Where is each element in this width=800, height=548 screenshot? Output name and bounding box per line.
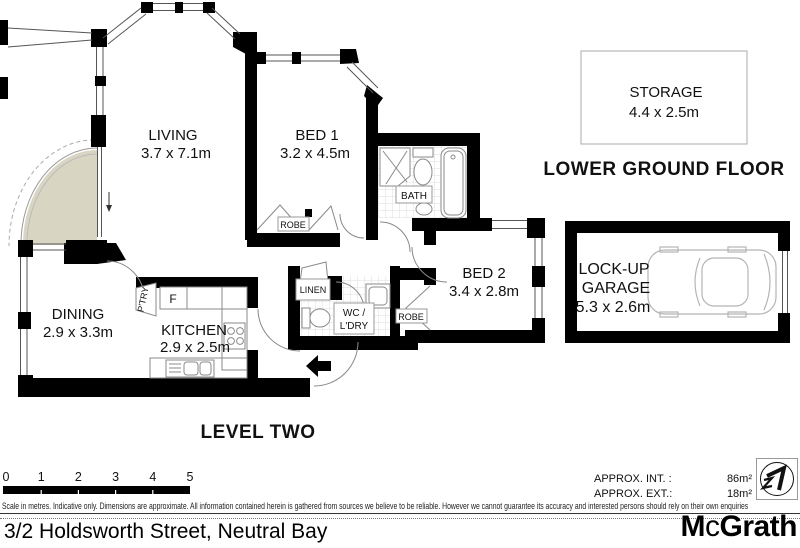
- living-dims: 3.7 x 7.1m: [141, 145, 211, 162]
- kitchen-dims: 2.9 x 2.5m: [160, 339, 230, 356]
- scale-bar: 0 1 2 3 4 5: [0, 462, 220, 502]
- bed1-dims: 3.2 x 4.5m: [280, 145, 350, 162]
- storage-label: STORAGE: [629, 84, 702, 101]
- scale-tick-1: 1: [38, 470, 45, 484]
- dining-label: DINING: [52, 306, 105, 323]
- level-two-label: LEVEL TWO: [201, 422, 316, 443]
- bath-label: BATH: [401, 191, 427, 202]
- basin: [416, 203, 432, 215]
- approx-areas: APPROX. INT. : 86m² APPROX. EXT.: 18m²: [594, 472, 752, 502]
- living-label: LIVING: [148, 127, 197, 144]
- wc-label-line1: WC /: [343, 308, 365, 319]
- level-two-plan: LIVING 3.7 x 7.1m BED 1 3.2 x 4.5m BED 2…: [0, 2, 545, 443]
- fridge-label: F: [169, 292, 176, 306]
- north-compass-icon: [756, 458, 798, 500]
- logo-m: M: [680, 510, 705, 543]
- garage: LOCK-UP GARAGE 5.3 x 2.6m: [565, 221, 790, 343]
- car-top-view: [648, 247, 776, 317]
- scale-tick-4: 4: [149, 470, 156, 484]
- mcgrath-logo: McGrath: [680, 510, 797, 544]
- dining-dims: 2.9 x 3.3m: [43, 324, 113, 341]
- wc-label-line2: L'DRY: [340, 321, 369, 332]
- wc-toilet-bowl: [310, 309, 330, 327]
- scale-tick-2: 2: [75, 470, 82, 484]
- bed1-label: BED 1: [295, 127, 338, 144]
- robe1-label: ROBE: [280, 220, 306, 230]
- logo-grath: Grath: [719, 510, 797, 543]
- approx-int-label: APPROX. INT. :: [594, 472, 672, 487]
- approx-ext-label: APPROX. EXT.:: [594, 487, 672, 502]
- balcony: [9, 140, 101, 246]
- property-address: 3/2 Holdsworth Street, Neutral Bay: [4, 520, 327, 544]
- robe1-door-right: [309, 206, 338, 230]
- scale-tick-3: 3: [112, 470, 119, 484]
- logo-c: c: [705, 510, 720, 543]
- garage-label-line2: GARAGE: [582, 280, 650, 297]
- wc-toilet-tank: [302, 308, 310, 328]
- approx-int-row: APPROX. INT. : 86m²: [594, 472, 752, 487]
- toilet-bowl: [414, 159, 432, 185]
- floorplan-drawing: LIVING 3.7 x 7.1m BED 1 3.2 x 4.5m BED 2…: [0, 0, 800, 460]
- linen-label: LINEN: [300, 285, 327, 295]
- approx-ext-value: 18m²: [727, 487, 752, 502]
- garage-dims: 5.3 x 2.6m: [576, 299, 651, 316]
- storage-dims: 4.4 x 2.5m: [629, 104, 699, 121]
- lower-ground-floor: STORAGE 4.4 x 2.5m LOWER GROUND FLOOR: [543, 51, 784, 180]
- scale-bar-rule: [3, 486, 190, 494]
- entry-arrow-icon: [306, 355, 331, 377]
- bed2-dims: 3.4 x 2.8m: [449, 283, 519, 300]
- bed1-door-arc: [340, 214, 364, 238]
- scale-tick-5: 5: [187, 470, 194, 484]
- garage-door: [783, 251, 788, 313]
- robe2-label: ROBE: [398, 312, 424, 322]
- scale-tick-0: 0: [3, 470, 10, 484]
- toilet-tank: [413, 148, 433, 157]
- bed2-label: BED 2: [462, 265, 505, 282]
- garage-label-line1: LOCK-UP: [578, 261, 649, 278]
- bench-top: [187, 287, 247, 309]
- kitchen-label: KITCHEN: [161, 322, 227, 339]
- bath-door-arc: [380, 222, 410, 252]
- floorplan-page: LIVING 3.7 x 7.1m BED 1 3.2 x 4.5m BED 2…: [0, 0, 800, 548]
- lower-ground-label: LOWER GROUND FLOOR: [543, 159, 784, 180]
- approx-int-value: 86m²: [727, 472, 752, 487]
- slider-arrow-icon: [106, 192, 112, 212]
- approx-ext-row: APPROX. EXT.: 18m²: [594, 487, 752, 502]
